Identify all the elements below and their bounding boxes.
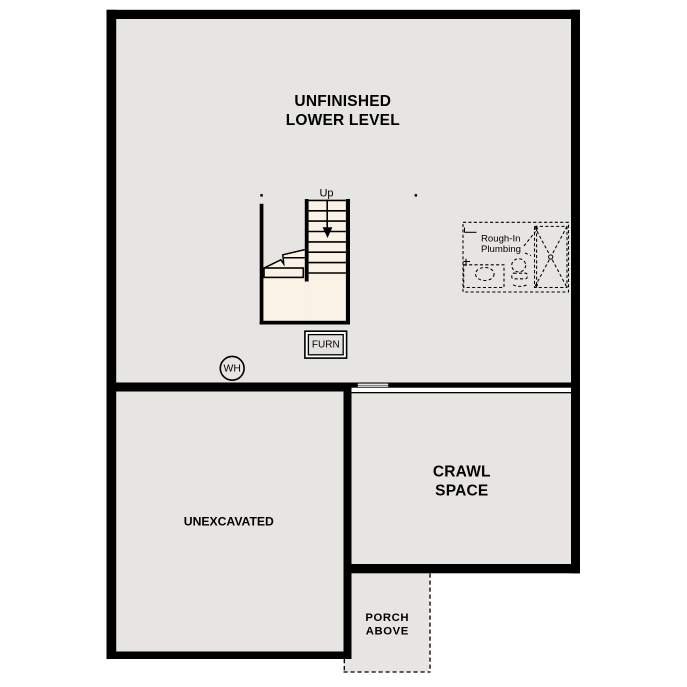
svg-text:ABOVE: ABOVE [366,626,409,638]
svg-text:LOWER LEVEL: LOWER LEVEL [286,112,400,129]
svg-text:Plumbing: Plumbing [481,244,521,255]
svg-text:PORCH: PORCH [365,612,409,624]
svg-text:UNEXCAVATED: UNEXCAVATED [184,515,274,529]
svg-text:WH: WH [224,364,241,375]
svg-text:Up: Up [319,188,333,200]
svg-text:SPACE: SPACE [435,483,488,500]
svg-text:UNFINISHED: UNFINISHED [294,93,391,110]
svg-text:CRAWL: CRAWL [433,464,491,481]
svg-text:Rough-In: Rough-In [481,233,520,244]
svg-text:FURN: FURN [312,340,340,351]
